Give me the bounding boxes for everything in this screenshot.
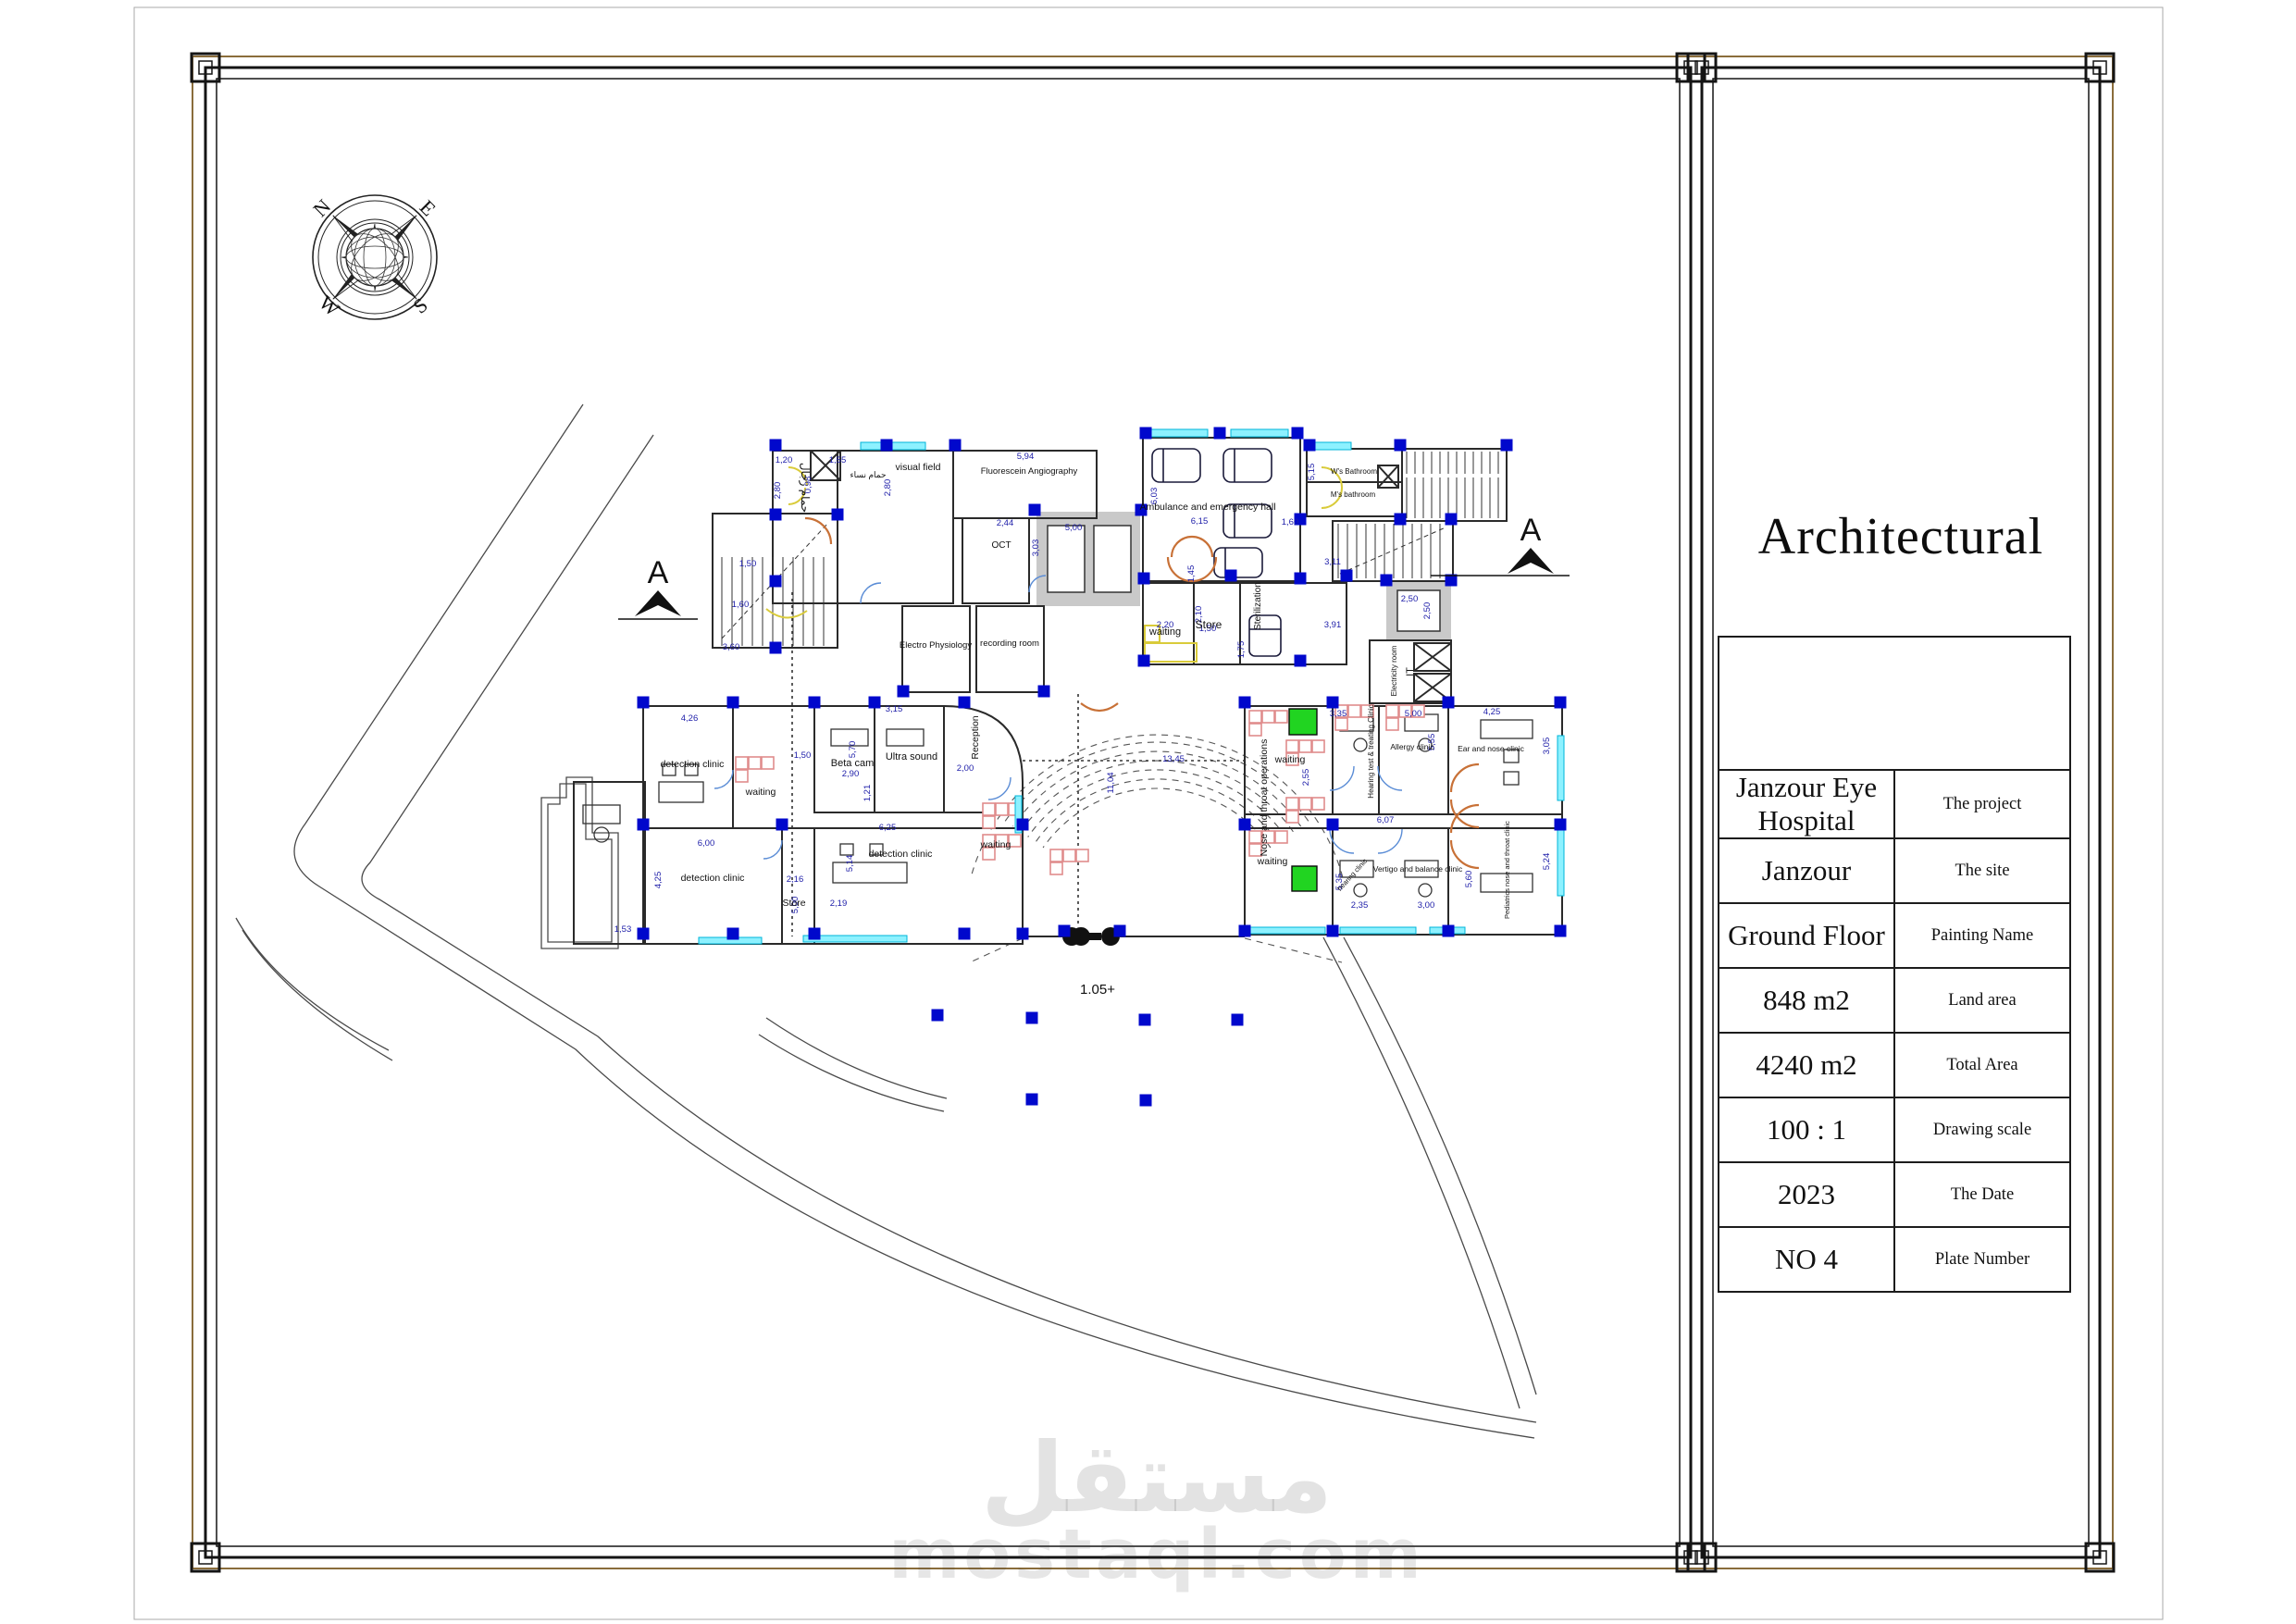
room-label: Store [782, 898, 805, 909]
dimension-label: 13,45 [1162, 754, 1185, 764]
room-label: Nose and throat operations [1259, 739, 1270, 857]
window-glazing [1558, 826, 1564, 896]
room-label: waiting [1257, 856, 1288, 867]
column-marker [1239, 925, 1251, 937]
column-marker [832, 509, 844, 521]
column-marker [1327, 697, 1339, 709]
room-label: Ultra sound [886, 751, 937, 762]
title-block-label: The Date [1894, 1162, 2070, 1227]
room-label: Electro Physiology [900, 640, 972, 651]
dimension-label: 2,50 [1401, 594, 1419, 604]
room-label: Store [1196, 618, 1222, 631]
dimension-label: 2,16 [787, 874, 804, 885]
column-marker [1017, 819, 1029, 831]
room-label: حمام نساء [850, 470, 886, 480]
title-block-row: 848 m2Land area [1719, 968, 2070, 1033]
dimension-label: 5,00 [1405, 709, 1422, 719]
column-marker [770, 509, 782, 521]
column-marker [1017, 928, 1029, 940]
column-marker [959, 697, 971, 709]
dimension-label: 4,25 [1483, 707, 1501, 717]
column-marker [1214, 428, 1226, 440]
dimension-label: 6,25 [879, 823, 897, 833]
column-marker [809, 697, 821, 709]
dimension-label: 5,70 [848, 741, 858, 759]
column-marker [1341, 570, 1353, 582]
window-glazing [1314, 442, 1351, 450]
dimension-label: 3,03 [1031, 539, 1041, 557]
column-marker [727, 697, 739, 709]
dimension-label: 3,05 [1542, 738, 1552, 755]
title-block-table: Janzour Eye HospitalThe projectJanzourTh… [1718, 636, 2071, 1293]
room-label: detection clinic [681, 873, 745, 884]
dimension-label: 2,00 [957, 763, 974, 774]
svg-text:S: S [408, 293, 431, 318]
room-label: Pediatrics nose and throat clinic [1503, 821, 1511, 919]
title-block-row: 2023The Date [1719, 1162, 2070, 1227]
column-marker [770, 440, 782, 452]
column-marker [1443, 697, 1455, 709]
title-block-row: Ground FloorPainting Name [1719, 903, 2070, 968]
dimension-label: 3,15 [886, 704, 903, 714]
room-label: waiting [745, 787, 776, 798]
column-marker [1304, 440, 1316, 452]
dimension-label: 2,80 [883, 479, 893, 497]
room-label: waiting [1148, 626, 1181, 638]
column-marker [1026, 1094, 1038, 1106]
svg-text:W: W [315, 291, 344, 321]
title-block-value: 2023 [1719, 1162, 1894, 1227]
title-block-row: 100 : 1Drawing scale [1719, 1097, 2070, 1162]
column-marker [1446, 514, 1458, 526]
column-marker [638, 697, 650, 709]
title-block-label: Painting Name [1894, 903, 2070, 968]
sofa-cluster [1050, 849, 1088, 874]
dimension-label: 1,75 [1236, 641, 1247, 659]
dimension-label: 2,35 [1351, 900, 1369, 911]
title-block-row: NO 4Plate Number [1719, 1227, 2070, 1292]
dimension-label: 6,15 [1191, 516, 1209, 527]
room-label: waiting [1274, 754, 1306, 765]
column-marker [932, 1010, 944, 1022]
room-label: detection clinic [661, 759, 725, 770]
dimension-label: 4,26 [681, 713, 699, 724]
column-marker [1239, 819, 1251, 831]
sofa-cluster [1249, 711, 1287, 736]
title-block-empty-row [1719, 637, 2070, 770]
svg-text:E: E [416, 195, 441, 220]
column-marker [638, 928, 650, 940]
dimension-label: 5,94 [1017, 452, 1035, 462]
sofa-cluster [736, 757, 774, 782]
room-label: recording room [980, 638, 1039, 649]
column-marker [898, 686, 910, 698]
title-block-label: Plate Number [1894, 1227, 2070, 1292]
column-marker [1395, 440, 1407, 452]
column-marker [1555, 697, 1567, 709]
column-marker [1026, 1012, 1038, 1024]
dimension-label: 1,20 [776, 455, 793, 465]
dimension-label: 3,91 [1324, 620, 1342, 630]
dimension-label: 2,50 [1422, 602, 1433, 620]
column-marker [1029, 504, 1041, 516]
column-marker [1555, 819, 1567, 831]
room-label: IT [1405, 667, 1416, 676]
room-label: Vertigo and balance clinic [1373, 864, 1463, 874]
column-marker [1138, 655, 1150, 667]
dimension-label: 6,07 [1377, 815, 1395, 825]
drawing-sheet: 1,201,552,800,982,805,942,443,035,001,50… [0, 0, 2296, 1624]
title-block-row: Janzour Eye HospitalThe project [1719, 770, 2070, 838]
column-marker [776, 819, 788, 831]
column-marker [809, 928, 821, 940]
plaza-step [1043, 788, 1271, 848]
section-marker-left: A [618, 555, 698, 619]
window-glazing [861, 442, 925, 450]
window-glazing [1340, 927, 1416, 934]
column-marker [1395, 514, 1407, 526]
title-block-value: 4240 m2 [1719, 1033, 1894, 1097]
dimension-label: 1,53 [614, 924, 632, 935]
dimension-label: 3,60 [723, 642, 740, 652]
dimension-label: 11,04 [1106, 772, 1116, 793]
column-marker [1292, 428, 1304, 440]
column-marker [727, 928, 739, 940]
dimension-label: 3,00 [1418, 900, 1435, 911]
column-marker [1139, 1014, 1151, 1026]
title-block-label: Total Area [1894, 1033, 2070, 1097]
dimension-label: 6,00 [698, 838, 715, 849]
room-label: Ambulance and emergency hall [1139, 502, 1275, 513]
column-marker [1327, 819, 1339, 831]
svg-text:N: N [308, 194, 335, 221]
room-label: Sterilization [1253, 582, 1263, 630]
room-label: Allergy clinic [1390, 742, 1434, 751]
compass-rose: N E S W [291, 173, 458, 341]
sofa-cluster [1286, 798, 1324, 823]
column-marker [770, 576, 782, 588]
dimension-label: 1,60 [732, 600, 750, 610]
dimension-label: 3,35 [1330, 709, 1347, 719]
column-marker [1295, 573, 1307, 585]
svg-text:A: A [648, 555, 669, 590]
dimension-label: 2,19 [830, 899, 848, 909]
window-glazing [1558, 736, 1564, 800]
svg-text:A: A [1520, 513, 1542, 548]
room-label: Reception [970, 715, 981, 759]
title-block-label: The project [1894, 770, 2070, 838]
sheet-title: Architectural [1702, 507, 2100, 566]
dimension-label: 1,50 [794, 750, 812, 761]
title-block-label: The site [1894, 838, 2070, 903]
room-label: Electricity room [1390, 645, 1398, 696]
column-marker [638, 819, 650, 831]
title-block-row: 4240 m2Total Area [1719, 1033, 2070, 1097]
dimension-label: 1,21 [863, 785, 873, 802]
dimension-label: 1,45 [1186, 565, 1197, 583]
window-glazing [1150, 429, 1208, 437]
room-label: Fluorescein Angiography [981, 466, 1078, 477]
room-label: OCT [991, 540, 1011, 551]
room-label: M's bathroom [1331, 490, 1376, 499]
title-block-value: Janzour [1719, 838, 1894, 903]
dimension-label: 5,60 [1464, 871, 1474, 888]
dimension-label: 4,25 [653, 872, 664, 889]
column-marker [1140, 1095, 1152, 1107]
dimension-label: 1,60 [1282, 517, 1299, 527]
column-marker [1059, 925, 1071, 937]
room-label: Beta cam [831, 758, 874, 769]
dimension-label: 5,00 [1065, 523, 1083, 533]
entrance-door-icon [1062, 927, 1120, 946]
dimension-label: 2,44 [997, 518, 1014, 528]
level-annotation: 1.05+ [1080, 982, 1115, 998]
title-block-value: Janzour Eye Hospital [1719, 770, 1894, 838]
column-marker [1114, 925, 1126, 937]
room-label: W's Bathroom [1331, 467, 1377, 476]
column-marker [1038, 686, 1050, 698]
dimension-label: 2,80 [773, 482, 783, 500]
plaza-step [1021, 761, 1294, 832]
title-block-value: Ground Floor [1719, 903, 1894, 968]
room-label: Hearing test & treating Clinic [1367, 704, 1375, 798]
window-glazing [1249, 927, 1325, 934]
column-marker [1140, 428, 1152, 440]
room-label: detection clinic [869, 849, 933, 860]
room-label: Ear and nose clinic [1458, 744, 1525, 753]
column-marker [770, 642, 782, 654]
title-block-value: NO 4 [1719, 1227, 1894, 1292]
dimension-label: 2,90 [842, 769, 860, 779]
title-block-label: Drawing scale [1894, 1097, 2070, 1162]
window-glazing [1231, 429, 1288, 437]
title-block-value: 848 m2 [1719, 968, 1894, 1033]
plaza-axis [970, 938, 1342, 962]
dimension-label: 3,11 [1324, 557, 1341, 567]
column-marker [949, 440, 962, 452]
column-marker [881, 440, 893, 452]
column-marker [869, 697, 881, 709]
room-label: visual field [895, 462, 940, 473]
dimension-label: 5,14 [845, 855, 855, 873]
title-block-label: Land area [1894, 968, 2070, 1033]
dimension-label: 5,24 [1542, 853, 1552, 871]
column-marker [959, 928, 971, 940]
title-block-row: JanzourThe site [1719, 838, 2070, 903]
column-marker [1555, 925, 1567, 937]
dimension-label: 1,50 [739, 559, 757, 569]
title-block-value: 100 : 1 [1719, 1097, 1894, 1162]
column-marker [1225, 570, 1237, 582]
column-marker [1295, 655, 1307, 667]
room-label: حمام رجال [799, 463, 812, 513]
column-marker [1239, 697, 1251, 709]
column-marker [1501, 440, 1513, 452]
column-marker [1232, 1014, 1244, 1026]
dimension-label: 5,15 [1307, 464, 1317, 481]
dimension-label: 1,55 [829, 455, 847, 465]
column-marker [1443, 925, 1455, 937]
site-roads [236, 404, 1536, 1438]
column-marker [1138, 573, 1150, 585]
dimension-label: 2,55 [1301, 769, 1311, 787]
column-marker [1327, 925, 1339, 937]
column-marker [1381, 575, 1393, 587]
room-label: waiting [980, 839, 1011, 850]
